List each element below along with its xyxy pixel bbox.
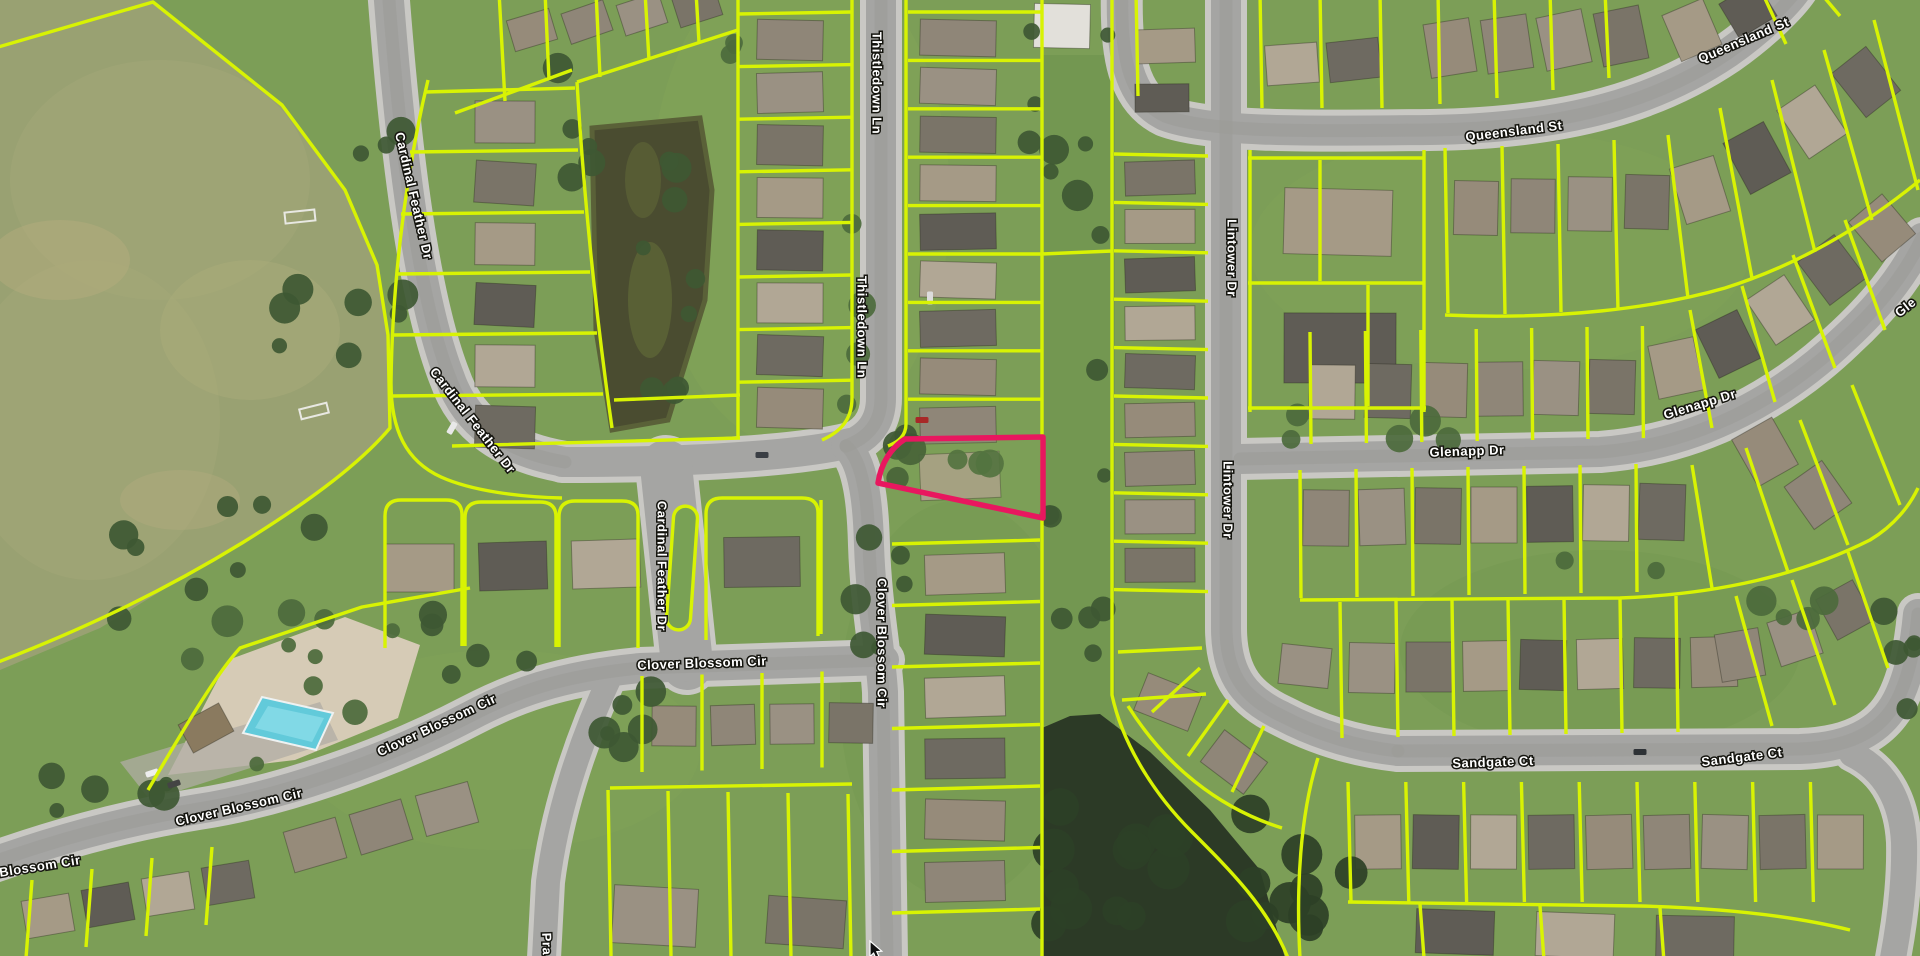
tree [49, 803, 64, 818]
tree [1084, 644, 1102, 662]
map-canvas[interactable]: Cardinal Feather Dr Cardinal Feather Dr … [0, 0, 1920, 956]
house-roof [475, 101, 535, 143]
tree [217, 496, 238, 517]
house-roof [756, 387, 823, 429]
tree [181, 648, 204, 671]
tree [660, 152, 679, 171]
house-roof [924, 799, 1005, 841]
tree [1031, 906, 1066, 941]
house-roof [756, 335, 823, 377]
house-roof [920, 116, 997, 153]
street-label-thistledown-ln-2: Thistledown Ln [855, 276, 870, 378]
house-roof [925, 738, 1006, 779]
tree [1086, 359, 1108, 381]
tree [1062, 180, 1093, 211]
tree [1870, 598, 1897, 625]
tree [281, 638, 296, 653]
house-roof [1568, 177, 1613, 232]
tree [1043, 869, 1079, 905]
house-roof [920, 19, 997, 57]
house-roof [1303, 490, 1350, 547]
tree [1041, 788, 1079, 826]
house-roof [478, 541, 547, 591]
house-roof [474, 160, 537, 206]
house-roof [1125, 306, 1195, 341]
tree [342, 700, 367, 725]
house-roof [920, 358, 997, 396]
tree [1896, 698, 1917, 719]
house-roof [1124, 160, 1195, 196]
tree [516, 651, 537, 672]
house-roof [1125, 209, 1195, 243]
house-roof [919, 67, 996, 105]
tree [1051, 608, 1073, 630]
house-roof [1283, 188, 1393, 257]
tree [344, 289, 371, 316]
tree [278, 599, 305, 626]
car [756, 452, 769, 458]
tree [185, 578, 209, 602]
house-roof [1593, 5, 1649, 67]
street-label-sandgate-ct-1: Sandgate Ct [1452, 753, 1534, 771]
house-roof [1701, 814, 1748, 869]
house-roof [652, 706, 696, 746]
house-roof [1136, 28, 1195, 64]
tree [686, 269, 706, 289]
car [916, 417, 929, 423]
house-roof [474, 283, 536, 328]
house-roof [1471, 487, 1517, 543]
tree [81, 775, 109, 803]
tree [304, 676, 323, 695]
house-roof [1532, 360, 1580, 415]
map-viewport[interactable]: Cardinal Feather Dr Cardinal Feather Dr … [0, 0, 1920, 956]
tree [230, 562, 246, 578]
house-roof [1423, 18, 1477, 79]
house-roof [1638, 483, 1686, 540]
house-roof [757, 283, 823, 323]
house-roof [1583, 485, 1630, 542]
house-roof [757, 125, 824, 166]
tree [636, 676, 667, 707]
street-label-clover-blossom-cir-2: Clover Blossom Cir [875, 578, 890, 708]
tree [442, 665, 461, 684]
tree [466, 644, 490, 668]
house-roof [611, 885, 698, 948]
tree [336, 342, 362, 368]
tree [600, 726, 614, 740]
house-roof [765, 895, 846, 949]
house-roof [1278, 643, 1332, 688]
house-roof [1348, 642, 1395, 693]
tree [1147, 847, 1189, 889]
street-label-pra-partial: Pra [539, 932, 555, 955]
house-roof [1124, 257, 1195, 293]
house-roof [1415, 488, 1462, 545]
tree [1288, 895, 1329, 936]
street-label-lintower-dr-1: Lintower Dr [1225, 219, 1240, 297]
tree [419, 601, 447, 629]
house-roof [1406, 642, 1452, 692]
tree [1117, 902, 1145, 930]
house-roof [920, 165, 996, 202]
house-roof [1528, 815, 1575, 870]
house-roof [1364, 363, 1412, 418]
tree [1776, 609, 1792, 625]
tree [856, 524, 882, 550]
house-roof [1135, 84, 1189, 112]
house-roof [924, 860, 1005, 902]
tree [1647, 562, 1664, 579]
house-roof [757, 19, 824, 60]
tree [1091, 226, 1109, 244]
tree [1023, 23, 1040, 40]
house-roof [1588, 359, 1635, 414]
street-label-cardinal-feather-dr-3: Cardinal Feather Dr [655, 501, 670, 631]
tree [1033, 829, 1075, 871]
tree [38, 763, 64, 789]
tree [249, 757, 264, 772]
tree [282, 274, 313, 305]
house-roof [1656, 915, 1735, 956]
house-roof [1470, 815, 1516, 869]
house-roof [1624, 174, 1670, 229]
house-roof [710, 704, 755, 745]
house-roof [1125, 402, 1196, 437]
house-roof [1124, 353, 1195, 389]
tree [662, 187, 688, 213]
house-roof [757, 178, 823, 219]
street-label-thistledown-ln-1: Thistledown Ln [870, 32, 885, 134]
tree [353, 145, 369, 161]
house-roof [1412, 815, 1459, 870]
tree [612, 695, 632, 715]
house-roof [1585, 814, 1633, 869]
tree [1282, 430, 1301, 449]
tree [1231, 795, 1270, 834]
tree [636, 240, 651, 255]
tree [272, 338, 287, 353]
house-roof [1358, 488, 1406, 546]
house-roof [1535, 912, 1615, 956]
tree [1746, 586, 1776, 616]
tree [1018, 131, 1042, 155]
house-roof [1125, 548, 1195, 582]
tree [1097, 468, 1111, 482]
tree [308, 649, 323, 664]
house-roof [1576, 638, 1623, 689]
house-roof [1634, 638, 1681, 689]
house-roof [920, 309, 997, 347]
house-roof [1759, 814, 1806, 869]
tree [841, 584, 871, 614]
street-label-glenapp-dr-2: Glenapp Dr [1429, 442, 1505, 460]
house-roof [475, 223, 536, 266]
house-roof [1463, 641, 1510, 692]
tree [850, 632, 877, 659]
house-roof [1125, 500, 1195, 534]
tree [301, 514, 328, 541]
house-roof [924, 553, 1005, 596]
tree [891, 546, 910, 565]
house-roof [829, 703, 874, 744]
house-roof [1527, 486, 1574, 543]
house-roof [386, 544, 454, 592]
house-roof [1415, 909, 1494, 956]
house-roof [1265, 42, 1320, 86]
tree [385, 623, 400, 638]
house-roof [920, 213, 997, 251]
house-roof [571, 539, 640, 589]
house-roof [770, 704, 814, 744]
house-roof [757, 230, 824, 271]
tree [896, 576, 913, 593]
tree [211, 605, 243, 637]
tree [387, 279, 418, 310]
house-roof [1125, 450, 1196, 486]
tree [378, 137, 395, 154]
house-roof [1643, 814, 1690, 869]
house-roof [1511, 179, 1556, 233]
house-roof [475, 345, 535, 387]
tree [109, 520, 138, 549]
house-roof [1453, 181, 1498, 236]
tree [1078, 136, 1093, 151]
house-roof [924, 676, 1005, 718]
tree [1043, 164, 1059, 180]
house-roof [1817, 815, 1863, 869]
car [1634, 749, 1647, 755]
house-roof [1309, 365, 1356, 420]
tree [1556, 551, 1574, 569]
house-roof [1477, 362, 1524, 417]
house-roof [1480, 14, 1533, 74]
street-label-lintower-dr-2: Lintower Dr [1221, 461, 1236, 539]
house-roof [756, 72, 823, 114]
house-roof [1326, 37, 1382, 83]
house-roof [1519, 639, 1566, 690]
tree [681, 306, 697, 322]
tree [253, 496, 271, 514]
tree [1113, 831, 1152, 870]
house-roof [924, 614, 1005, 657]
tree [1386, 425, 1414, 453]
house-roof [724, 536, 801, 587]
